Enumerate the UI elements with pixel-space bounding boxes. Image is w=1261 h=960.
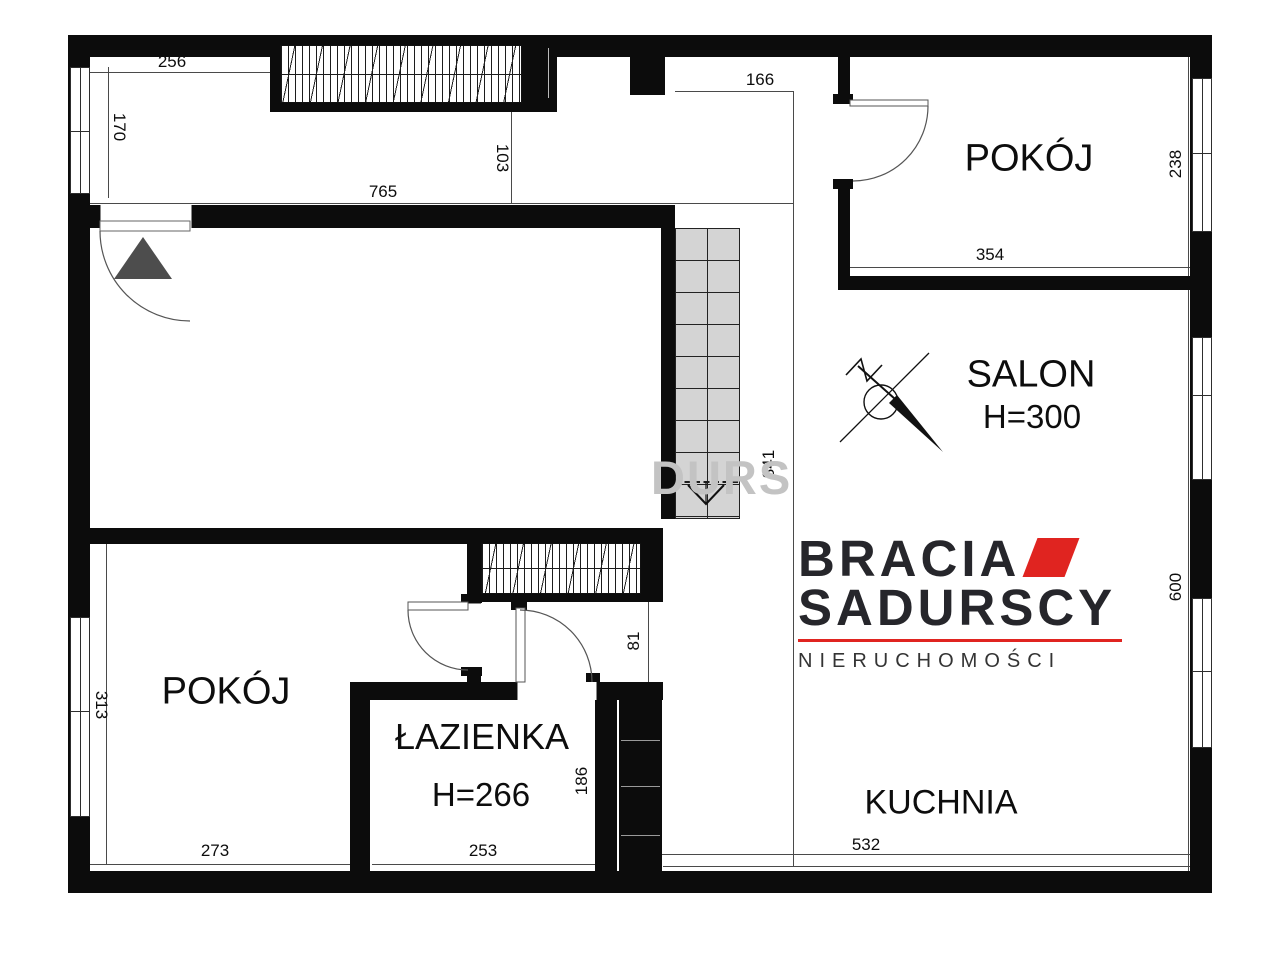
dim-253: 253 — [469, 841, 497, 861]
brand-line2: SADURSCY — [798, 583, 1122, 632]
dim-line — [88, 203, 793, 204]
door-opening-room-tr — [838, 103, 850, 185]
dim-line — [662, 854, 1190, 855]
door-opening-room-bl — [467, 603, 481, 670]
wall-room-bl-top — [68, 528, 481, 544]
door-bathroom — [511, 601, 600, 682]
duct-divider — [621, 740, 660, 741]
dim-600: 600 — [1166, 573, 1186, 601]
duct-divider — [621, 835, 660, 836]
room-label-lazienka: ŁAZIENKA — [395, 716, 569, 758]
dim-273: 273 — [201, 841, 229, 861]
wall-room-tr-left — [838, 183, 850, 278]
brand-tagline: NIERUCHOMOŚCI — [798, 650, 1122, 673]
window-salon — [1192, 337, 1212, 480]
dim-81: 81 — [624, 632, 644, 651]
duct-divider — [621, 786, 660, 787]
window-corridor — [70, 67, 90, 194]
duct-shaft — [619, 700, 662, 871]
closet-frame — [481, 528, 663, 543]
brand-line1: BRACIA — [798, 534, 1020, 583]
entrance-door — [100, 221, 190, 321]
window-room-bl — [70, 617, 90, 817]
dim-line — [90, 864, 350, 865]
dim-765: 765 — [369, 182, 397, 202]
dim-256: 256 — [158, 52, 186, 72]
north-arrow-icon — [840, 353, 943, 452]
room-label-pokoj-tr: POKÓJ — [965, 138, 1094, 181]
wardrobe-end-panel — [520, 45, 557, 101]
wall-room-tr-bottom — [838, 276, 1212, 290]
room-label-salon-height: H=300 — [983, 398, 1081, 436]
dim-line — [793, 91, 794, 866]
wall-corridor-bottom — [88, 205, 100, 228]
dim-line — [1188, 45, 1189, 871]
dim-186: 186 — [572, 767, 592, 795]
brand-flag-icon — [1023, 538, 1080, 577]
dim-line — [850, 267, 1190, 268]
dim-line — [675, 91, 793, 92]
wall-stub-hall — [630, 43, 665, 95]
dim-166: 166 — [746, 70, 774, 90]
brand-rule — [798, 639, 1122, 642]
entrance-arrow-icon — [114, 237, 172, 279]
wardrobe-hall-icon — [481, 543, 641, 594]
window-room-tr — [1192, 78, 1212, 232]
window-kuchnia — [1192, 598, 1212, 748]
dim-103: 103 — [492, 144, 512, 172]
wardrobe-top-icon — [280, 45, 522, 103]
wardrobe-end-line — [548, 48, 549, 98]
dim-line — [648, 602, 649, 682]
wall-room-tr-left — [838, 57, 850, 103]
wall-outer-bottom — [68, 871, 1212, 893]
wall-room-bl-right — [467, 528, 481, 603]
dim-170: 170 — [109, 113, 129, 141]
wall-bathroom-right — [595, 700, 617, 871]
brand-logo: BRACIA SADURSCY NIERUCHOMOŚCI — [798, 534, 1122, 673]
entrance-opening — [100, 205, 192, 228]
wall-bathroom-left — [350, 700, 370, 871]
watermark-text: DURS — [651, 450, 792, 505]
dim-line — [88, 72, 270, 73]
door-opening-bathroom — [517, 682, 597, 700]
closet-end-panel — [639, 528, 663, 602]
room-label-lazienka-height: H=266 — [432, 776, 530, 814]
dim-238: 238 — [1166, 150, 1186, 178]
wall-bathroom-top — [350, 682, 517, 700]
room-label-pokoj-bl: POKÓJ — [162, 671, 291, 714]
room-label-salon: SALON — [967, 354, 1096, 397]
dim-313: 313 — [91, 691, 111, 719]
wall-bathroom-top — [595, 682, 663, 700]
floor-plan: 256 170 765 103 166 238 354 841 600 313 … — [0, 0, 1261, 960]
wall-corridor-bottom — [190, 205, 675, 228]
dim-354: 354 — [976, 245, 1004, 265]
dim-532: 532 — [852, 835, 880, 855]
dim-line — [372, 864, 595, 865]
dim-line — [663, 866, 1190, 867]
room-label-kuchnia: KUCHNIA — [864, 784, 1017, 823]
